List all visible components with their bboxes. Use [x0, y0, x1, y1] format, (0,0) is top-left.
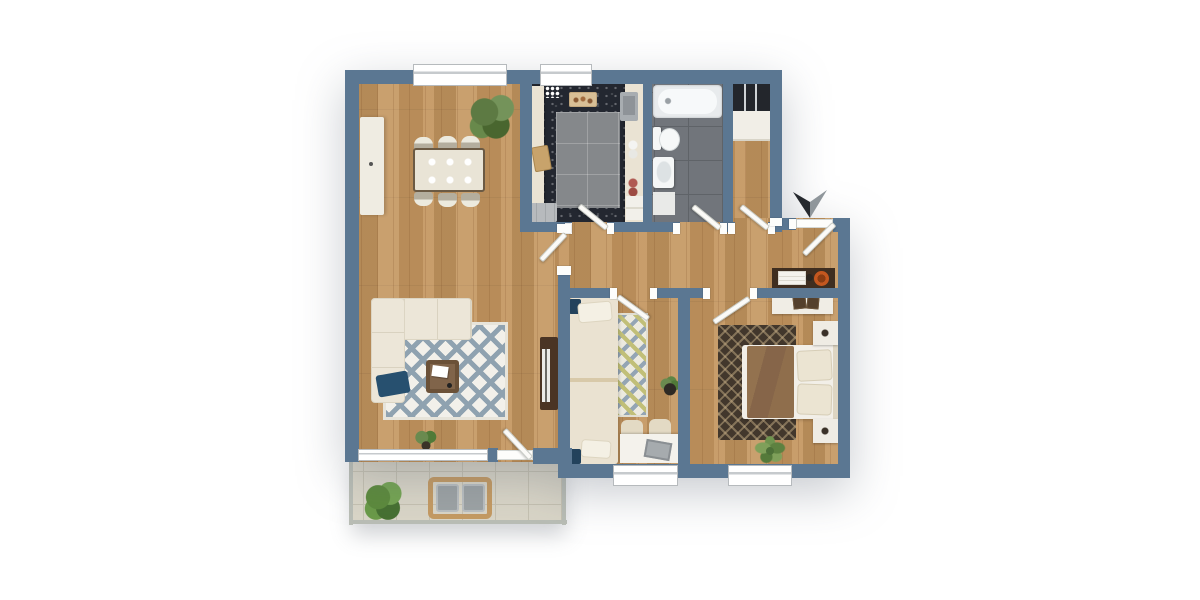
kitchen-sink — [620, 92, 638, 121]
hall-cabinet — [733, 111, 770, 141]
wall-kitchen-left — [520, 70, 532, 232]
window-dining — [413, 64, 507, 86]
wall-right — [838, 218, 850, 478]
wall-closet-right — [770, 70, 782, 226]
door-jamb — [770, 218, 782, 226]
wall-bedroom1-left — [558, 267, 570, 478]
floor-plan-canvas — [0, 0, 1200, 600]
console-dark-dish — [806, 274, 813, 281]
tv-screen — [542, 349, 550, 402]
wall-kitchen-bath — [643, 70, 652, 232]
wall-bedroom-divider — [678, 288, 690, 478]
wall-bedrooms-bottom — [558, 464, 850, 478]
coffee-table-papers — [431, 365, 448, 378]
kitchen-red-jars — [626, 178, 640, 198]
door-jamb — [673, 223, 680, 234]
window-bedroom1 — [613, 465, 678, 486]
dining-table — [413, 148, 485, 192]
north-arrow-dark-half — [793, 192, 810, 218]
door-jamb — [728, 223, 735, 234]
bedroom2-nightstand-top — [813, 321, 838, 345]
bedroom2-dresser-box — [806, 296, 819, 309]
bath-mat — [653, 192, 675, 215]
toilet-bowl — [659, 128, 680, 151]
north-arrow-icon — [791, 189, 829, 219]
window-kitchen — [540, 64, 592, 86]
wall-living-bottom-right — [533, 448, 572, 464]
wall-bath-closet — [723, 70, 733, 232]
bedroom1-pillow-bottom — [580, 439, 611, 459]
kitchen-dishes — [626, 140, 640, 160]
door-jamb — [650, 288, 657, 299]
wall-hall-top-seg2 — [607, 222, 680, 232]
door-jamb — [789, 219, 796, 229]
bedroom2-pillow-top — [796, 349, 833, 382]
window-living-balcony — [358, 449, 488, 461]
bedroom1-pillow-top — [577, 301, 613, 324]
bedroom1-bed-seam — [569, 378, 618, 382]
door-jamb — [750, 288, 757, 299]
bedroom2-pillow-bottom — [796, 383, 832, 415]
bathtub-basin — [658, 89, 717, 114]
coffee-table-bowl — [447, 383, 452, 388]
door-jamb — [703, 288, 710, 299]
wall-left — [345, 70, 359, 462]
kitchen-hob — [545, 86, 560, 98]
bedroom2-duvet — [747, 346, 794, 418]
dining-chair — [461, 193, 480, 207]
wall-bedrooms-top-seg3 — [750, 288, 838, 298]
console-tray — [778, 271, 806, 285]
sideboard-tall — [360, 117, 384, 215]
hall-wardrobe — [733, 84, 770, 111]
north-arrow-light-half — [810, 190, 827, 218]
kitchen-dishwasher — [528, 203, 557, 222]
bedroom2-palm-plant — [752, 436, 788, 466]
washbasin — [653, 157, 674, 188]
window-bedroom2 — [728, 465, 792, 486]
door-jamb — [557, 266, 571, 275]
sideboard-knob — [369, 162, 373, 166]
console-orange-bowl — [814, 271, 829, 286]
kitchen-tray — [569, 92, 597, 107]
dining-chair — [414, 192, 433, 206]
kitchen-washer — [626, 196, 643, 220]
dining-plant — [467, 92, 517, 142]
dining-chair — [438, 193, 457, 207]
bedroom2-nightstand-bottom — [813, 419, 838, 443]
kitchen-floor-mat — [556, 112, 620, 208]
